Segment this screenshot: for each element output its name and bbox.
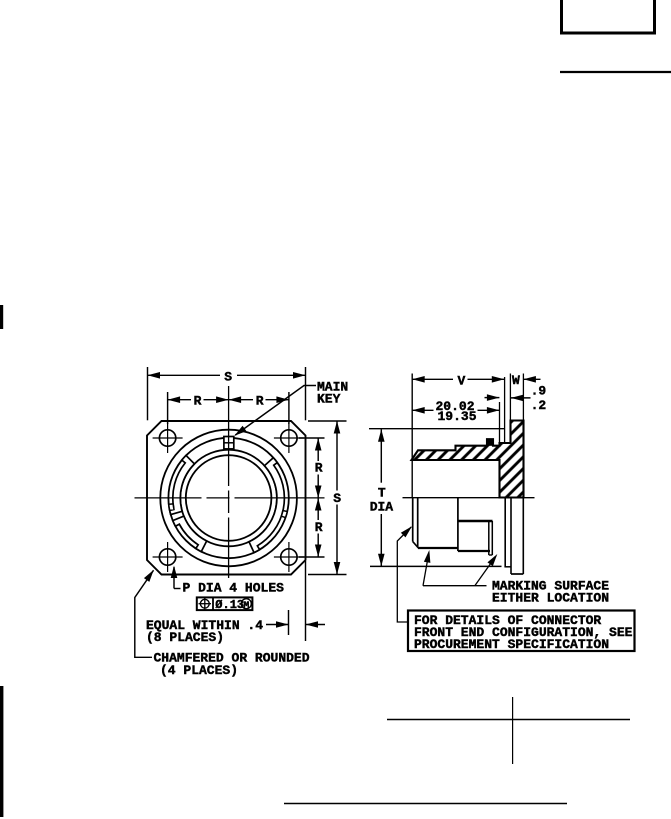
svg-text:19.35: 19.35 (438, 409, 477, 424)
svg-text:DIA: DIA (370, 499, 394, 514)
svg-text:Ø.13: Ø.13 (215, 598, 244, 612)
svg-text:V: V (458, 373, 466, 388)
svg-text:R: R (315, 461, 323, 476)
svg-text:EITHER LOCATION: EITHER LOCATION (492, 591, 609, 606)
svg-text:PROCUREMENT SPECIFICATION: PROCUREMENT SPECIFICATION (414, 637, 609, 652)
svg-text:M: M (243, 599, 249, 610)
svg-text:R: R (256, 394, 264, 409)
svg-text:W: W (512, 373, 520, 388)
svg-text:(4 PLACES): (4 PLACES) (160, 663, 238, 678)
svg-text:(8 PLACES): (8 PLACES) (146, 630, 224, 645)
svg-text:R: R (194, 394, 202, 409)
svg-text:KEY: KEY (317, 392, 341, 407)
svg-text:.2: .2 (531, 398, 547, 413)
svg-text:S: S (224, 369, 232, 384)
svg-text:.9: .9 (531, 384, 547, 399)
svg-text:R: R (315, 520, 323, 535)
svg-text:S: S (333, 491, 341, 506)
svg-text:P DIA 4 HOLES: P DIA 4 HOLES (183, 581, 285, 596)
svg-text:T: T (378, 485, 386, 500)
